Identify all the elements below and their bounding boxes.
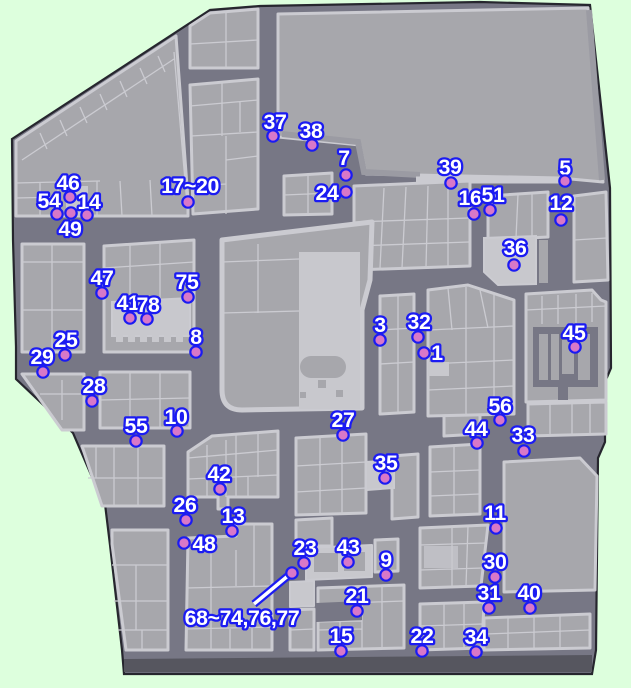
svg-text:16: 16 [459,186,482,210]
svg-text:36: 36 [504,236,527,260]
svg-text:33: 33 [512,423,535,447]
svg-text:12: 12 [550,191,573,215]
svg-text:7: 7 [338,146,349,170]
svg-text:51: 51 [482,183,505,207]
svg-text:39: 39 [439,155,462,179]
svg-text:49: 49 [59,217,82,241]
svg-text:68~74,76,77: 68~74,76,77 [185,606,300,630]
svg-text:28: 28 [83,374,106,398]
svg-text:17~20: 17~20 [161,174,219,198]
svg-text:24: 24 [316,181,339,205]
svg-text:1: 1 [431,341,443,365]
svg-text:48: 48 [193,532,216,556]
